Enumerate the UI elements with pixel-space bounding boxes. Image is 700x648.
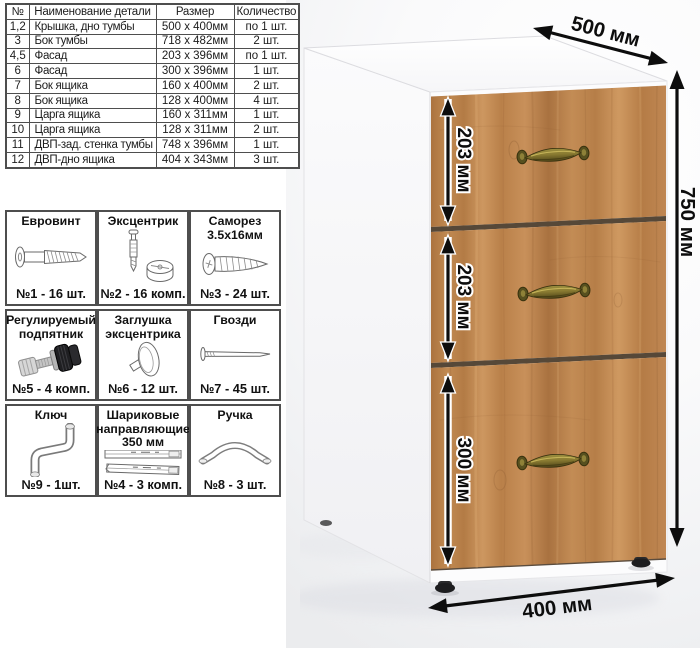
part-size: 160 x 400мм — [156, 78, 234, 93]
part-name: Фасад — [29, 49, 156, 64]
hardware-cell-handle: Ручка №8 - 3 шт. — [189, 404, 281, 497]
part-size: 718 x 482мм — [156, 34, 234, 49]
table-row: 7Бок ящика160 x 400мм2 шт. — [6, 78, 299, 93]
part-num: 10 — [6, 123, 29, 138]
part-name: Бок тумбы — [29, 34, 156, 49]
hardware-count: №3 - 24 шт. — [200, 286, 270, 304]
handle-icon — [197, 423, 273, 477]
col-header-num: № — [6, 4, 29, 19]
part-name: ДВП-дно ящика — [29, 152, 156, 167]
cam-cap-icon — [113, 341, 173, 381]
adjustable-foot-icon — [15, 341, 87, 381]
dimension-label-drawer3: 300 мм — [453, 437, 474, 502]
dimension-arrow-height: 750 мм — [670, 70, 700, 547]
part-qty: 2 шт. — [234, 123, 299, 138]
hardware-count: №7 - 45 шт. — [200, 381, 270, 399]
euroscrew-icon — [13, 229, 89, 286]
part-size: 404 x 343мм — [156, 152, 234, 167]
part-num: 4,5 — [6, 49, 29, 64]
dimension-label-height: 750 мм — [676, 187, 699, 257]
table-header-row: № Наименование детали Размер Количество — [6, 4, 299, 19]
table-row: 11ДВП-зад. стенка тумбы748 x 396мм1 шт. — [6, 138, 299, 153]
part-qty: по 1 шт. — [234, 49, 299, 64]
self-tapping-screw-icon — [200, 242, 270, 286]
hardware-cell-foot: Регулируемый подпятник №5 - 4 комп. — [5, 309, 97, 401]
hardware-title: Евровинт — [20, 212, 81, 229]
part-num: 9 — [6, 108, 29, 123]
table-row: 1,2Крышка, дно тумбы500 x 400ммпо 1 шт. — [6, 19, 299, 34]
table-row: 10Царга ящика128 x 311мм2 шт. — [6, 123, 299, 138]
hardware-title: Регулируемый подпятник — [5, 311, 97, 341]
table-row: 4,5Фасад203 x 396ммпо 1 шт. — [6, 49, 299, 64]
part-qty: 3 шт. — [234, 152, 299, 167]
hardware-cell-key: Ключ №9 - 1шт. — [5, 404, 97, 497]
part-num: 7 — [6, 78, 29, 93]
hardware-cell-cam-cap: Заглушка эксцентрика №6 - 12 шт. — [97, 309, 189, 401]
part-qty: 1 шт. — [234, 108, 299, 123]
hardware-grid: Евровинт №1 - 16 шт. Эксцентрик — [5, 210, 281, 497]
part-name: Фасад — [29, 64, 156, 79]
nail-icon — [197, 328, 273, 381]
part-size: 748 x 396мм — [156, 138, 234, 153]
part-name: Бок ящика — [29, 93, 156, 108]
part-size: 128 x 311мм — [156, 123, 234, 138]
part-name: Крышка, дно тумбы — [29, 19, 156, 34]
dimension-label-drawer1: 203 мм — [453, 127, 474, 192]
table-row: 9Царга ящика160 x 311мм1 шт. — [6, 108, 299, 123]
col-header-size: Размер — [156, 4, 234, 19]
part-num: 11 — [6, 138, 29, 153]
part-name: ДВП-зад. стенка тумбы — [29, 138, 156, 153]
drawer-slides-icon — [103, 450, 183, 477]
cabinet-left-side — [304, 48, 430, 583]
hardware-count: №2 - 16 комп. — [100, 286, 185, 304]
hardware-count: №6 - 12 шт. — [108, 381, 178, 399]
part-num: 12 — [6, 152, 29, 167]
part-qty: по 1 шт. — [234, 19, 299, 34]
hardware-count: №4 - 3 комп. — [104, 477, 182, 495]
cabinet-illustration: 500 мм 750 мм 400 мм 203 мм 203 мм 300 м — [300, 0, 700, 648]
hardware-title: Гвозди — [213, 311, 258, 328]
part-name: Царга ящика — [29, 108, 156, 123]
part-name: Бок ящика — [29, 78, 156, 93]
cam-lock-icon — [108, 229, 178, 286]
hardware-title: Заглушка эксцентрика — [99, 311, 187, 341]
hardware-title: Саморез 3.5х16мм — [191, 212, 279, 242]
hardware-cell-screw: Саморез 3.5х16мм №3 - 24 шт. — [189, 210, 281, 306]
col-header-name: Наименование детали — [29, 4, 156, 19]
hardware-title: Ручка — [216, 406, 253, 423]
part-num: 3 — [6, 34, 29, 49]
part-size: 203 x 396мм — [156, 49, 234, 64]
table-row: 8Бок ящика128 x 400мм4 шт. — [6, 93, 299, 108]
part-size: 300 x 396мм — [156, 64, 234, 79]
hardware-count: №8 - 3 шт. — [204, 477, 267, 495]
part-name: Царга ящика — [29, 123, 156, 138]
part-qty: 1 шт. — [234, 64, 299, 79]
part-qty: 2 шт. — [234, 78, 299, 93]
hardware-cell-nails: Гвозди №7 - 45 шт. — [189, 309, 281, 401]
part-num: 6 — [6, 64, 29, 79]
hardware-count: №1 - 16 шт. — [16, 286, 86, 304]
part-num: 1,2 — [6, 19, 29, 34]
hardware-cell-slides: Шариковые направляющие 350 мм №4 - 3 ком… — [97, 404, 189, 497]
hardware-cell-euroscrew: Евровинт №1 - 16 шт. — [5, 210, 97, 306]
parts-table: № Наименование детали Размер Количество … — [5, 3, 300, 169]
hardware-title: Ключ — [34, 406, 69, 423]
hardware-count: №9 - 1шт. — [21, 477, 80, 495]
part-size: 500 x 400мм — [156, 19, 234, 34]
hardware-title: Эксцентрик — [107, 212, 180, 229]
table-row: 3Бок тумбы718 x 482мм2 шт. — [6, 34, 299, 49]
col-header-qty: Количество — [234, 4, 299, 19]
part-qty: 4 шт. — [234, 93, 299, 108]
assembly-sheet: { "parts_table": { "headers": ["№", "Наи… — [0, 0, 700, 648]
table-row: 12ДВП-дно ящика404 x 343мм3 шт. — [6, 152, 299, 167]
hardware-cell-cam-lock: Эксцентрик №2 - 16 комп. — [97, 210, 189, 306]
part-size: 160 x 311мм — [156, 108, 234, 123]
hex-key-icon — [20, 423, 82, 477]
table-row: 6Фасад300 x 396мм1 шт. — [6, 64, 299, 79]
hardware-count: №5 - 4 комп. — [12, 381, 90, 399]
part-size: 128 x 400мм — [156, 93, 234, 108]
cabinet-foot — [320, 520, 332, 526]
part-num: 8 — [6, 93, 29, 108]
dimension-label-drawer2: 203 мм — [453, 264, 474, 329]
hardware-title: Шариковые направляющие 350 мм — [95, 406, 191, 450]
part-qty: 2 шт. — [234, 34, 299, 49]
part-qty: 1 шт. — [234, 138, 299, 153]
